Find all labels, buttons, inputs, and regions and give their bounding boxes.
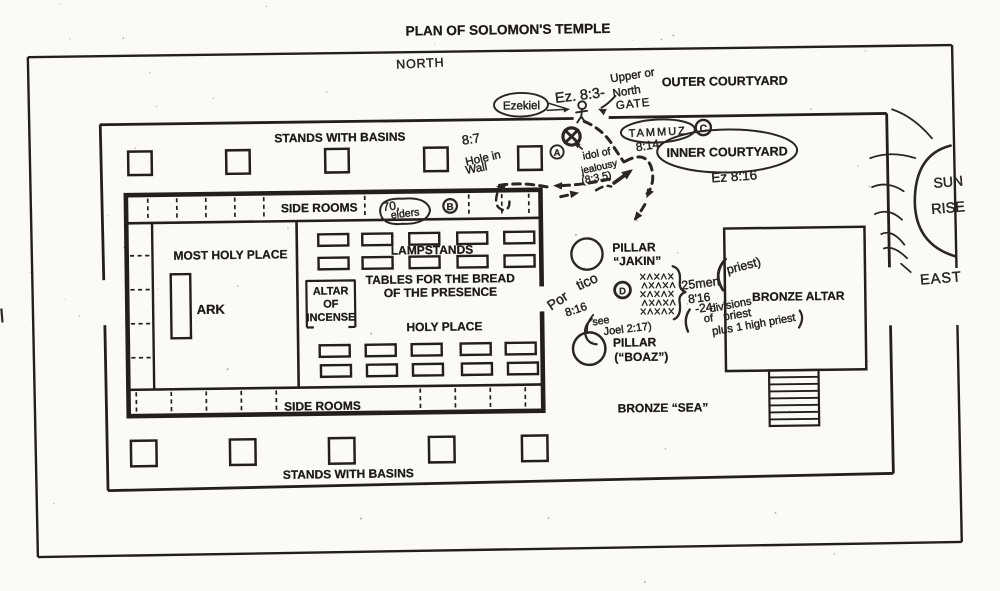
svg-text:HOLY PLACE: HOLY PLACE <box>406 319 482 334</box>
svg-text:A: A <box>554 148 561 159</box>
svg-text:ARK: ARK <box>197 302 226 317</box>
svg-text:SUN: SUN <box>933 172 964 190</box>
svg-text:(“BOAZ”): (“BOAZ”) <box>614 350 668 365</box>
svg-text:INNER COURTYARD: INNER COURTYARD <box>667 144 788 160</box>
svg-text:OF THE PRESENCE: OF THE PRESENCE <box>384 285 498 300</box>
svg-text:SIDE ROOMS: SIDE ROOMS <box>281 200 358 215</box>
svg-text:B: B <box>446 202 453 213</box>
svg-text:PILLAR: PILLAR <box>613 335 657 350</box>
svg-text:8:7: 8:7 <box>461 130 481 148</box>
svg-text:OF: OF <box>323 298 339 310</box>
svg-text:Ez 8:16: Ez 8:16 <box>711 167 758 185</box>
svg-text:OUTER COURTYARD: OUTER COURTYARD <box>662 74 788 90</box>
svg-text:STANDS WITH BASINS: STANDS WITH BASINS <box>283 466 414 482</box>
svg-text:MOST HOLY PLACE: MOST HOLY PLACE <box>173 247 287 262</box>
svg-text:C: C <box>699 123 707 135</box>
svg-text:PLAN OF SOLOMON'S TEMPLE: PLAN OF SOLOMON'S TEMPLE <box>405 21 610 39</box>
svg-text:STANDS WITH BASINS: STANDS WITH BASINS <box>274 130 405 146</box>
svg-text:“JAKIN”: “JAKIN” <box>613 254 661 269</box>
svg-text:ALTAR: ALTAR <box>313 285 349 297</box>
svg-text:NORTH: NORTH <box>396 55 445 71</box>
svg-text:BRONZE ALTAR: BRONZE ALTAR <box>752 289 845 304</box>
svg-text:SIDE ROOMS: SIDE ROOMS <box>284 399 361 414</box>
svg-text:Ezekiel: Ezekiel <box>503 100 540 112</box>
svg-text:D: D <box>619 286 626 297</box>
svg-text:BRONZE “SEA”: BRONZE “SEA” <box>618 400 709 415</box>
svg-text:RISE: RISE <box>931 199 966 218</box>
svg-text:INCENSE: INCENSE <box>306 311 355 324</box>
svg-text:PILLAR: PILLAR <box>612 240 656 255</box>
